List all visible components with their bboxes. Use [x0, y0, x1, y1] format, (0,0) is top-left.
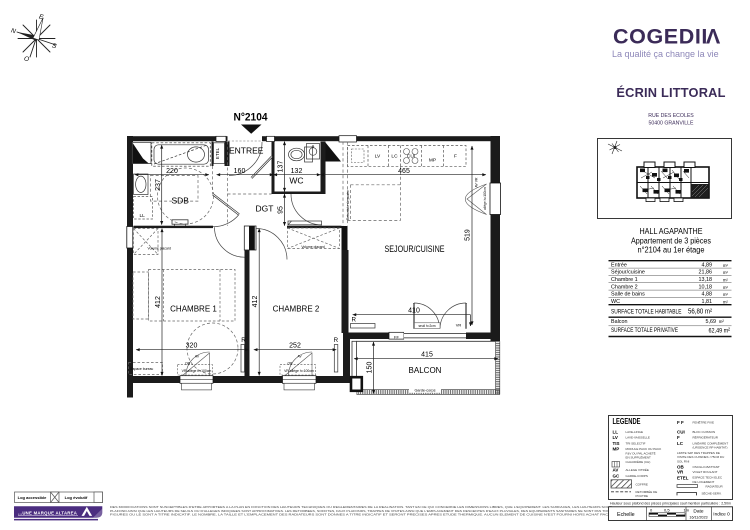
svg-text:ETEL: ETEL	[215, 147, 220, 159]
svg-text:LL: LL	[613, 430, 619, 435]
svg-text:TRI SELECTIF: TRI SELECTIF	[626, 441, 646, 445]
svg-text:AV: AV	[297, 355, 302, 359]
svg-text:EN SUPPLÉMENT: EN SUPPLÉMENT	[626, 455, 652, 460]
svg-text:132: 132	[291, 168, 303, 175]
svg-text:Volume placard: Volume placard	[148, 247, 171, 251]
svg-text:CHAMBRE 2: CHAMBRE 2	[273, 305, 320, 314]
svg-text:220: 220	[166, 168, 178, 175]
svg-text:N°2104: N°2104	[234, 112, 269, 124]
svg-text:10,18: 10,18	[699, 284, 713, 290]
svg-text:320: 320	[186, 343, 198, 350]
svg-text:137: 137	[277, 161, 284, 173]
svg-text:HALL AGAPANTHE: HALL AGAPANTHE	[640, 227, 703, 236]
svg-text:SÈCHE-SERV.: SÈCHE-SERV.	[702, 491, 722, 496]
svg-text:m²: m²	[723, 270, 728, 275]
svg-text:465: 465	[398, 168, 410, 175]
svg-text:POUTRE: POUTRE	[636, 494, 649, 498]
svg-text:5,69: 5,69	[706, 319, 717, 325]
svg-text:CHAMBRE 1: CHAMBRE 1	[170, 305, 217, 314]
svg-text:SURFACE TOTALE HABITABLE: SURFACE TOTALE HABITABLE	[611, 310, 682, 316]
svg-text:LV: LV	[613, 435, 618, 440]
svg-text:MP: MP	[429, 158, 436, 164]
svg-text:SEJOUR/CUISINE: SEJOUR/CUISINE	[385, 244, 445, 254]
svg-text:Retombée de poutre: Retombée de poutre	[346, 190, 350, 220]
svg-text:SURFACE TOTALE PRIVATIVE: SURFACE TOTALE PRIVATIVE	[611, 328, 678, 334]
svg-text:RÉFRIGÉRATEUR: RÉFRIGÉRATEUR	[693, 435, 719, 440]
svg-text:AV: AV	[195, 355, 200, 359]
svg-text:Balcon: Balcon	[611, 319, 627, 325]
svg-text:seuil h=2cm: seuil h=2cm	[418, 324, 435, 328]
svg-text:SDB: SDB	[172, 196, 190, 206]
svg-text:LV: LV	[375, 154, 381, 160]
svg-text:m²: m²	[723, 292, 728, 297]
svg-text:Chambre 2: Chambre 2	[611, 284, 638, 290]
svg-text:519: 519	[465, 229, 472, 241]
svg-text:DES MODIFICATIONS SONT SUSCEPT: DES MODIFICATIONS SONT SUSCEPTIBLES D'ET…	[110, 505, 612, 509]
svg-text:COFFRE: COFFRE	[636, 482, 648, 486]
svg-text:F: F	[454, 154, 457, 160]
svg-text:415: 415	[421, 352, 433, 359]
svg-text:Chambre 1: Chambre 1	[611, 277, 638, 283]
svg-text:150: 150	[366, 362, 373, 374]
svg-text:16/11/2023: 16/11/2023	[689, 515, 707, 519]
svg-text:CUI: CUI	[407, 154, 415, 160]
svg-text:1m: 1m	[684, 508, 690, 513]
svg-text:LC: LC	[677, 441, 684, 446]
svg-text:MP: MP	[613, 447, 620, 452]
svg-text:ÉCRIN LITTORAL: ÉCRIN LITTORAL	[616, 85, 725, 100]
svg-text:4,89: 4,89	[702, 262, 713, 268]
svg-text:Espace bureau: Espace bureau	[131, 367, 154, 371]
svg-text:OB: OB	[288, 361, 294, 365]
svg-text:GARDE-CORPS: GARDE-CORPS	[626, 474, 648, 478]
svg-text:R: R	[352, 317, 357, 324]
svg-text:Indice 0: Indice 0	[713, 512, 730, 517]
svg-text:ALLEGE VITRÉE: ALLEGE VITRÉE	[626, 467, 649, 472]
svg-text:RUE DES ECOLES: RUE DES ECOLES	[648, 113, 694, 119]
svg-text:VOLET ROULANT: VOLET ROULANT	[693, 470, 718, 474]
svg-text:56,80 m²: 56,80 m²	[688, 309, 713, 316]
svg-text:TIS: TIS	[613, 441, 620, 446]
svg-text:m²: m²	[723, 299, 728, 304]
svg-text:FENÊTRE FIXE: FENÊTRE FIXE	[693, 420, 715, 425]
svg-text:Date: Date	[693, 509, 703, 515]
svg-text:DE LOGEMENT: DE LOGEMENT	[693, 480, 715, 484]
svg-text:m²: m²	[723, 277, 728, 282]
svg-text:Volume placard: Volume placard	[301, 245, 324, 249]
svg-text:SOL FINI: SOL FINI	[677, 459, 690, 463]
svg-text:4,88: 4,88	[702, 292, 713, 298]
svg-text:RADIATEUR: RADIATEUR	[706, 484, 724, 488]
svg-text:Appartement de 3 pièces: Appartement de 3 pièces	[631, 237, 711, 246]
svg-text:R: R	[241, 337, 246, 344]
svg-text:LC: LC	[391, 154, 398, 160]
svg-text:Séjour/cuisine: Séjour/cuisine	[611, 270, 645, 276]
svg-text:VR: VR	[677, 470, 684, 475]
svg-text:13,18: 13,18	[699, 277, 713, 283]
svg-text:412: 412	[155, 296, 162, 308]
svg-text:ETEL: ETEL	[677, 476, 689, 481]
svg-text:CUI: CUI	[677, 430, 685, 435]
svg-text:AV VR: AV VR	[475, 177, 479, 187]
svg-text:BALCON: BALCON	[409, 366, 442, 375]
svg-text:62,49 m²: 62,49 m²	[709, 328, 731, 335]
svg-text:m²: m²	[719, 319, 725, 324]
svg-text:VR allège h=100cm: VR allège h=100cm	[182, 369, 212, 373]
svg-text:COGEDIIΛ: COGEDIIΛ	[613, 25, 721, 49]
svg-text:GC: GC	[613, 473, 621, 478]
svg-text:160: 160	[234, 168, 246, 175]
svg-text:VR allège h=100cm: VR allège h=100cm	[284, 369, 314, 373]
svg-text:DGT: DGT	[256, 204, 274, 214]
svg-text:LL: LL	[140, 213, 146, 219]
svg-text:R: R	[334, 337, 339, 344]
svg-text:F: F	[677, 435, 680, 440]
svg-text:Salle de bains: Salle de bains	[611, 292, 645, 298]
svg-text:95: 95	[277, 206, 284, 214]
svg-text:allège h=100cm: allège h=100cm	[483, 187, 487, 210]
svg-text:F F: F F	[677, 420, 684, 425]
svg-text:412: 412	[252, 296, 259, 308]
svg-text:LAVE-VAISSELLE: LAVE-VAISSELLE	[626, 436, 650, 440]
svg-text:21,86: 21,86	[699, 270, 713, 276]
svg-text:252: 252	[289, 343, 301, 350]
svg-text:ENTREE: ENTREE	[229, 146, 264, 156]
svg-text:La qualité ça change la vie: La qualité ça change la vie	[612, 49, 719, 59]
svg-text:Garde-corps: Garde-corps	[414, 389, 435, 393]
svg-text:50400 GRANVILLE: 50400 GRANVILLE	[649, 121, 695, 127]
svg-text:BLOC CUISSON: BLOC CUISSON	[693, 430, 716, 434]
svg-text:m²: m²	[723, 285, 728, 290]
svg-text:OB: OB	[185, 361, 191, 365]
svg-text:LINÉAIRE COMPLÉMENT: LINÉAIRE COMPLÉMENT	[693, 440, 729, 445]
svg-text:F&V OU PAL ACHETÉ: F&V OU PAL ACHETÉ	[626, 450, 656, 455]
svg-text:FIGURES OU LE SONT A TITRE IND: FIGURES OU LE SONT A TITRE INDICATIF. LE…	[110, 513, 612, 517]
svg-text:CHAUDIÈRE (CH): CHAUDIÈRE (CH)	[626, 459, 651, 464]
svg-text:LAVE-LINGE: LAVE-LINGE	[626, 430, 643, 434]
svg-text:Log évolutif: Log évolutif	[65, 495, 88, 500]
svg-text:RETOMBÉE DE: RETOMBÉE DE	[636, 489, 658, 494]
svg-text:0,5: 0,5	[664, 508, 670, 513]
svg-text:WC: WC	[611, 299, 620, 305]
svg-text:237: 237	[155, 179, 162, 191]
svg-text:Entrée: Entrée	[611, 262, 627, 268]
svg-text:FF: FF	[394, 334, 399, 339]
svg-text:Hauteur sous plafond des pièce: Hauteur sous plafond des pièces principa…	[610, 502, 731, 506]
svg-text:AV: AV	[613, 468, 619, 473]
svg-text:1,81: 1,81	[702, 299, 713, 305]
svg-text:VR: VR	[456, 323, 462, 328]
svg-text:Echelle: Echelle	[617, 512, 635, 518]
svg-text:n°2104 au 1er étage: n°2104 au 1er étage	[638, 246, 706, 255]
svg-text:(URGENCE RP HABITAT): (URGENCE RP HABITAT)	[693, 446, 728, 450]
svg-text:WC: WC	[289, 176, 303, 186]
svg-text:410: 410	[408, 308, 420, 315]
svg-text:PLAFOND AINSI QUE LES HAUTEURS: PLAFOND AINSI QUE LES HAUTEURS DE SEUILS…	[110, 509, 612, 513]
svg-text:Log accessible: Log accessible	[18, 495, 47, 500]
svg-text:...UNE MARQUE ALTAREA: ...UNE MARQUE ALTAREA	[18, 510, 77, 515]
svg-text:m²: m²	[723, 263, 728, 268]
svg-text:OSCILLO-BATTANT: OSCILLO-BATTANT	[693, 465, 720, 469]
svg-text:LEGENDE: LEGENDE	[613, 417, 641, 426]
